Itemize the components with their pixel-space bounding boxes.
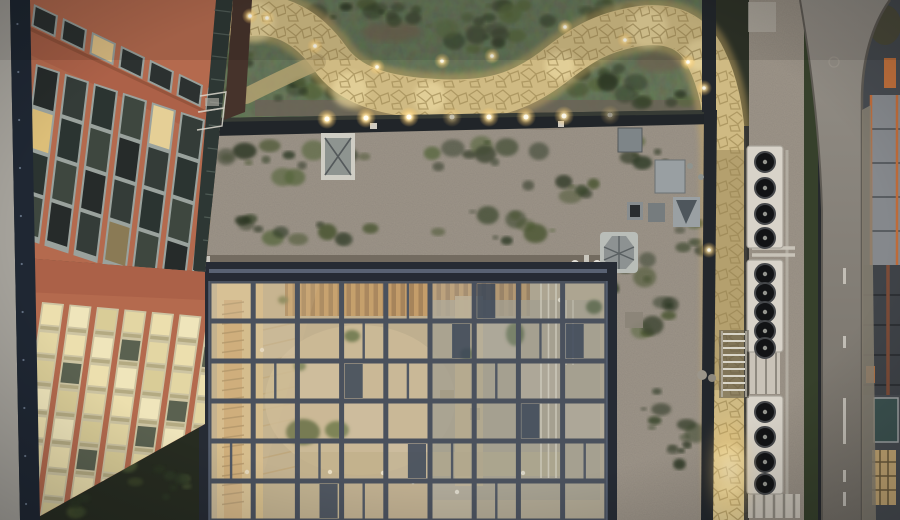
- aerial-rooftop-photo: [0, 0, 900, 520]
- vignette: [0, 0, 900, 520]
- photo-canvas: [0, 0, 900, 520]
